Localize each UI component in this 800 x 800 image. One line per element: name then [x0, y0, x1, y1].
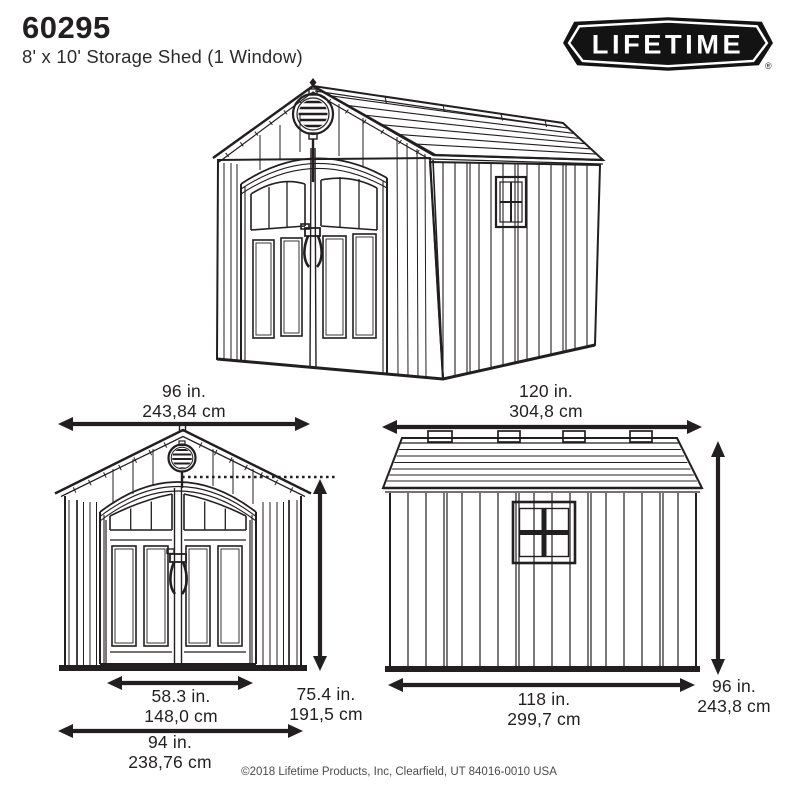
dim-side-length-cm: 304,8 cm: [509, 402, 583, 422]
gable-vent-icon: [169, 441, 196, 488]
perspective-view-drawing: [175, 78, 630, 398]
side-window-icon: [496, 177, 526, 227]
dim-door-width-in: 58.3 in.: [144, 687, 218, 707]
dim-overall-height-in: 96 in.: [697, 677, 771, 697]
dim-front-base-width: 94 in. 238,76 cm: [128, 733, 212, 772]
side-window-icon: [513, 502, 575, 563]
dim-door-height-in: 75.4 in.: [289, 685, 363, 705]
dim-door-width: 58.3 in. 148,0 cm: [144, 687, 218, 726]
dim-door-height: 75.4 in. 191,5 cm: [289, 685, 363, 724]
dim-front-width-cm: 243,84 cm: [142, 402, 226, 422]
dim-side-base-length-cm: 299,7 cm: [507, 710, 581, 730]
dim-door-width-cm: 148,0 cm: [144, 707, 218, 727]
copyright-text: ©2018 Lifetime Products, Inc, Clearfield…: [241, 766, 557, 778]
right-door: [184, 494, 250, 664]
dimension-arrow-door-height: [313, 479, 327, 671]
lifetime-logo-text: LIFETIME: [592, 29, 744, 60]
right-door: [321, 177, 377, 338]
dim-side-length: 120 in. 304,8 cm: [509, 382, 583, 421]
left-door: [106, 494, 172, 664]
roof-vents: [428, 431, 652, 442]
dim-overall-height: 96 in. 243,8 cm: [697, 677, 771, 716]
registered-trademark: ®: [765, 61, 772, 71]
model-number: 60295: [22, 10, 111, 46]
dim-front-width-in: 96 in.: [142, 382, 226, 402]
dim-side-base-length-in: 118 in.: [507, 690, 581, 710]
dim-door-height-cm: 191,5 cm: [289, 705, 363, 725]
spec-sheet-page: { "header": { "model": "60295", "subtitl…: [0, 0, 800, 800]
left-door: [251, 181, 305, 338]
side-elevation-drawing: [372, 412, 740, 712]
lifetime-logo: LIFETIME: [561, 15, 775, 73]
dimension-arrow-side-length: [382, 420, 702, 434]
dim-front-base-width-in: 94 in.: [128, 733, 212, 753]
dim-front-width: 96 in. 243,84 cm: [142, 382, 226, 421]
dim-side-base-length: 118 in. 299,7 cm: [507, 690, 581, 729]
dim-overall-height-cm: 243,8 cm: [697, 697, 771, 717]
dim-side-length-in: 120 in.: [509, 382, 583, 402]
dim-front-base-width-cm: 238,76 cm: [128, 753, 212, 773]
product-title: 8' x 10' Storage Shed (1 Window): [22, 46, 303, 68]
door-handle-icon: [167, 549, 187, 594]
dimension-arrow-height: [711, 441, 725, 675]
